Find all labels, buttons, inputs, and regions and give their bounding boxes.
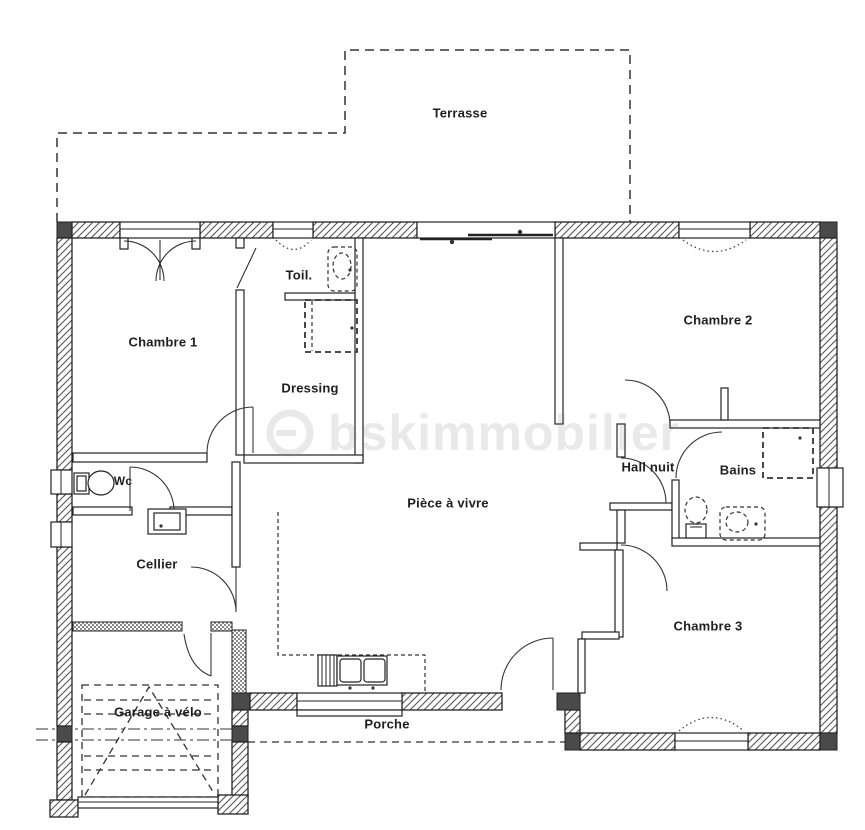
wc-toilet-fixture xyxy=(74,471,114,495)
door-toilettes xyxy=(237,248,256,288)
room-label-wc: Wc xyxy=(114,474,132,488)
shower-fixture xyxy=(763,428,813,478)
window-chambre1 xyxy=(120,222,200,281)
bains-toilet-fixture xyxy=(685,497,707,538)
garage-ramp xyxy=(82,685,218,797)
kitchen-sink-fixture xyxy=(318,655,387,690)
garage-door-opening xyxy=(78,797,218,808)
window-chambre2 xyxy=(679,222,750,252)
door-chambre1 xyxy=(207,407,253,453)
room-label-cellier: Cellier xyxy=(136,557,177,572)
room-label-toilettes: Toil. xyxy=(286,268,313,283)
window-wc-left xyxy=(51,470,72,494)
room-label-chambre2: Chambre 2 xyxy=(684,313,753,328)
window-bains-right xyxy=(817,468,843,507)
room-label-garage: Garage à vélo xyxy=(114,705,202,720)
room-label-porche: Porche xyxy=(364,717,409,732)
door-entry xyxy=(501,638,553,690)
door-garage xyxy=(184,633,211,676)
door-chambre3 xyxy=(621,545,667,591)
bay-window-sejour xyxy=(417,222,555,244)
window-kitchen xyxy=(297,693,402,716)
room-label-piece-a-vivre: Pièce à vivre xyxy=(407,496,488,511)
floor-plan-page: bskimmobilier Terrasse Chambre 1 Toil. D… xyxy=(0,0,865,830)
bains-sink-fixture xyxy=(720,507,765,540)
room-label-terrasse: Terrasse xyxy=(433,106,488,121)
terrace-outline xyxy=(57,50,630,222)
room-label-chambre1: Chambre 1 xyxy=(129,335,198,350)
cellier-sink-fixture xyxy=(148,509,186,534)
door-chambre2 xyxy=(625,380,670,425)
window-cellier-left xyxy=(51,522,72,547)
door-cellier xyxy=(191,567,236,612)
room-label-chambre3: Chambre 3 xyxy=(674,619,743,634)
dressing-unit-fixture xyxy=(305,300,357,352)
door-wc xyxy=(130,467,174,511)
toilettes-sink-fixture xyxy=(328,247,357,291)
window-toilettes xyxy=(273,222,313,250)
room-label-bains: Bains xyxy=(720,463,756,478)
window-chambre3 xyxy=(675,718,748,751)
room-label-dressing: Dressing xyxy=(281,381,338,396)
door-bains xyxy=(676,432,722,478)
room-label-hall-nuit: Hall nuit xyxy=(621,460,674,475)
